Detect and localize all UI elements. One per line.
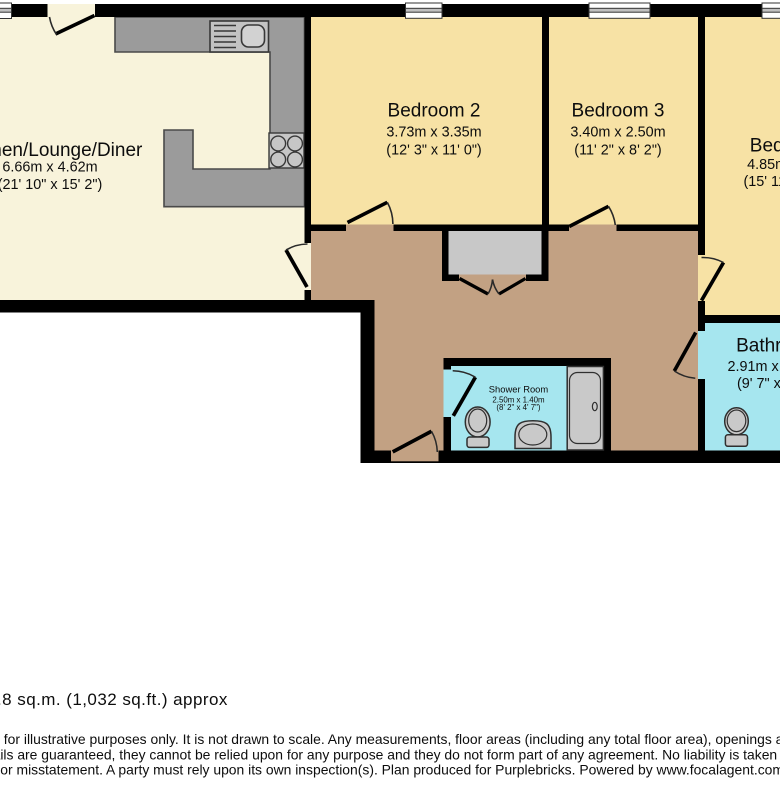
svg-text:or misstatement. A party must: or misstatement. A party must rely upon …: [0, 762, 780, 778]
svg-text:95.8 sq.m. (1,032 sq.ft.) appr: 95.8 sq.m. (1,032 sq.ft.) approx: [0, 690, 228, 709]
svg-text:Bathroom: Bathroom: [736, 336, 780, 357]
svg-text:(11' 2" x 8' 2"): (11' 2" x 8' 2"): [574, 142, 661, 158]
svg-text:(9' 7" x 7' 2"): (9' 7" x 7' 2"): [737, 376, 780, 392]
svg-text:details are guaranteed, they c: details are guaranteed, they cannot be r…: [0, 747, 780, 763]
svg-text:6.66m x 4.62m: 6.66m x 4.62m: [2, 160, 97, 176]
svg-text:(8' 2" x 4' 7"): (8' 2" x 4' 7"): [496, 403, 541, 412]
svg-text:Bedroom 3: Bedroom 3: [572, 101, 665, 122]
svg-text:Kitchen/Lounge/Diner: Kitchen/Lounge/Diner: [0, 140, 143, 161]
svg-text:(21' 10" x 15' 2"): (21' 10" x 15' 2"): [0, 177, 102, 193]
svg-text:Bedroom 2: Bedroom 2: [388, 101, 481, 122]
svg-text:(12' 3" x 11' 0"): (12' 3" x 11' 0"): [386, 142, 481, 158]
svg-text:Shower Room: Shower Room: [489, 384, 549, 395]
svg-text:(15' 11" x 15' 2"): (15' 11" x 15' 2"): [744, 174, 780, 190]
svg-text:3.73m x 3.35m: 3.73m x 3.35m: [386, 125, 481, 141]
svg-text:2.91m x 2.18m: 2.91m x 2.18m: [728, 359, 780, 375]
svg-text:4.85m x 4.62m: 4.85m x 4.62m: [747, 157, 780, 173]
svg-text:Bedroom 1: Bedroom 1: [750, 136, 780, 157]
svg-text:is for illustrative purposes o: is for illustrative purposes only. It is…: [0, 731, 780, 747]
svg-text:3.40m x 2.50m: 3.40m x 2.50m: [570, 125, 665, 141]
